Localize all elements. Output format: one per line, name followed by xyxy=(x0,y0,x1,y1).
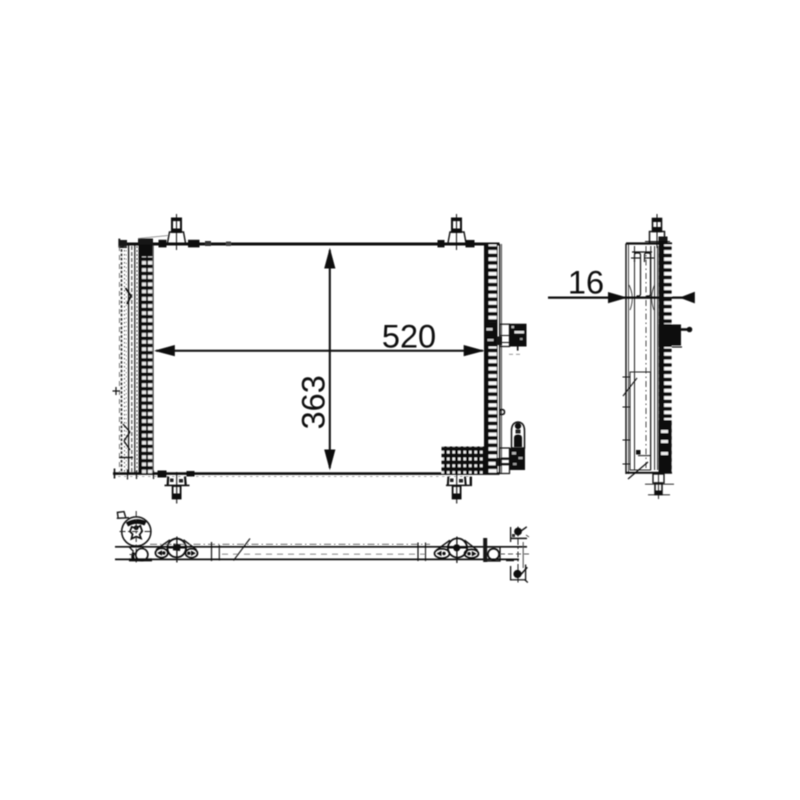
svg-text:520: 520 xyxy=(382,319,436,355)
svg-text:16: 16 xyxy=(568,265,604,301)
svg-text:363: 363 xyxy=(296,375,332,429)
